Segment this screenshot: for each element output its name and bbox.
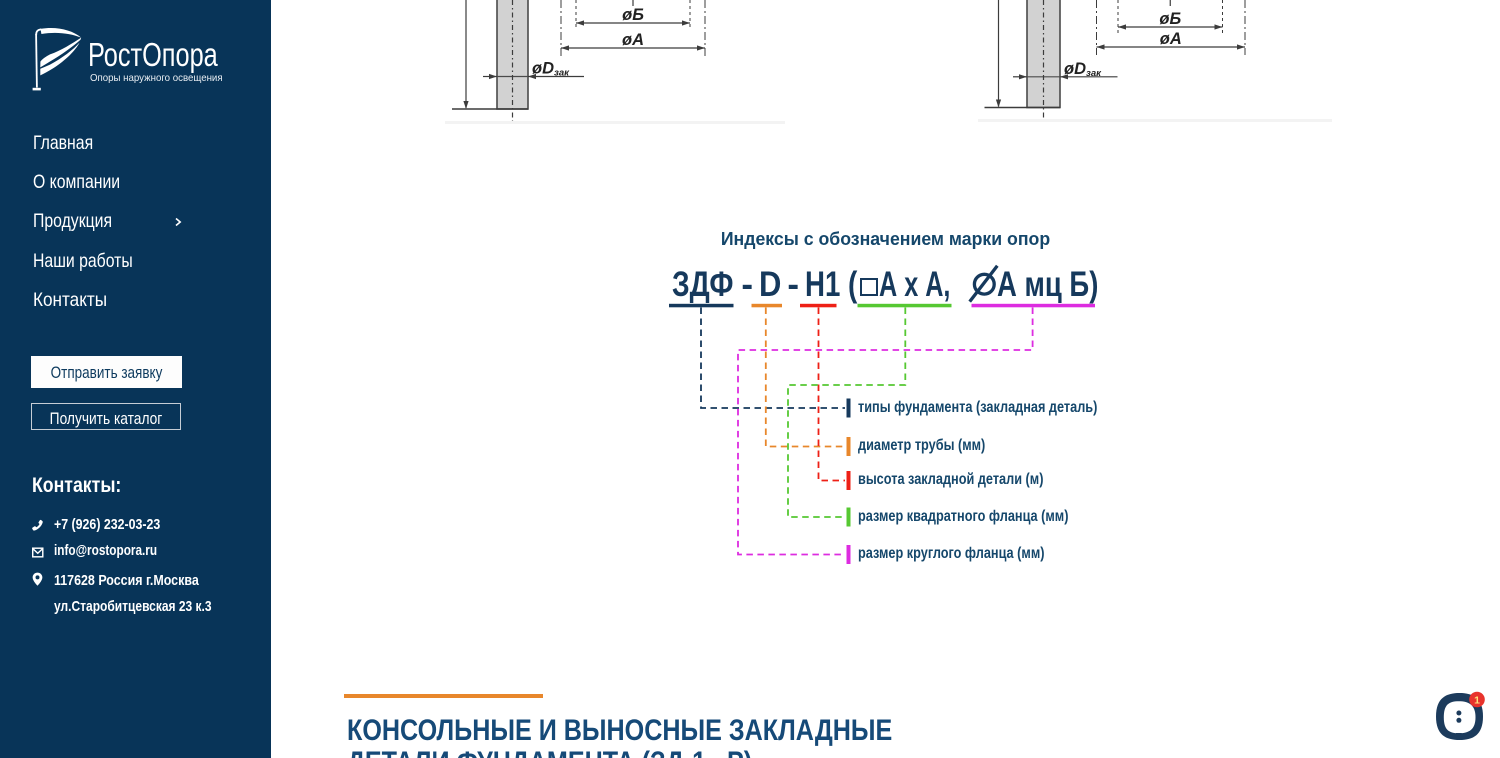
svg-text:øБ: øБ [622, 6, 644, 24]
svg-text:зак: зак [1086, 68, 1102, 79]
svg-text:øА: øА [1160, 30, 1182, 48]
svg-text:1: 1 [1474, 694, 1480, 706]
svg-text:øD: øD [1064, 60, 1086, 78]
svg-text:øБ: øБ [1159, 10, 1181, 28]
svg-text:øD: øD [532, 60, 554, 78]
svg-text:øА: øА [622, 31, 644, 49]
svg-text:зак: зак [554, 68, 570, 79]
